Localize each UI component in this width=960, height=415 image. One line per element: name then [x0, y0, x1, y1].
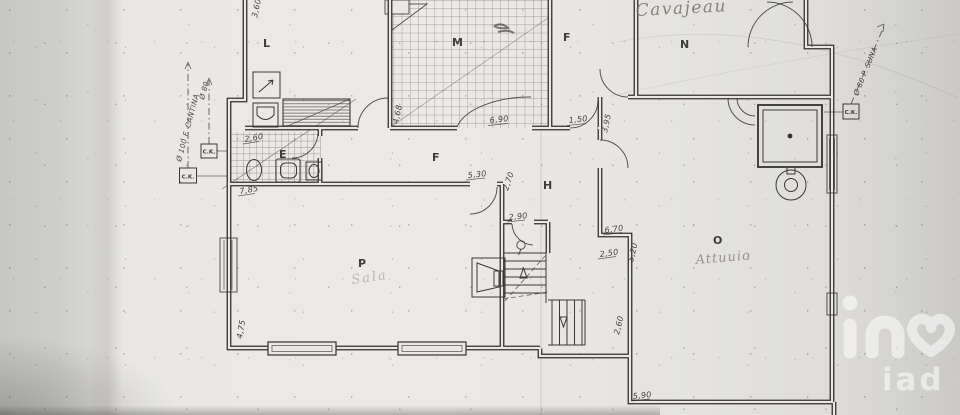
room-label-h: H: [543, 179, 552, 192]
tiled-floor-m: [385, 0, 550, 128]
dim-290: 2,90: [508, 211, 528, 222]
tiled-floor-bathroom: [229, 132, 321, 184]
window-bottom-2: [398, 342, 466, 355]
flue-box-label-2: C.K.: [203, 150, 216, 156]
room-label-f-mid: F: [432, 151, 440, 164]
room-label-e: E: [279, 148, 287, 161]
room-label-l: L: [263, 37, 270, 50]
shaft-and-boiler: [758, 105, 822, 200]
kitchen-fixtures: [253, 72, 280, 127]
dim-360: 3,60: [250, 0, 263, 18]
room-label-f-top: F: [563, 31, 571, 44]
window-bottom-1: [268, 342, 336, 355]
room-label-n: N: [680, 38, 689, 51]
handwritten-room-p-note: Sala: [350, 268, 388, 288]
room-label-m: M: [452, 36, 463, 49]
room-label-p: P: [358, 257, 366, 270]
flue-label-cantina: Ø 100 F. CANTINA: [174, 93, 201, 164]
dim-475: 4,75: [235, 319, 247, 339]
iad-logo-icon: [843, 296, 950, 353]
dim-270: 2,70: [501, 171, 515, 192]
handwritten-room-o-note: Attuuio: [694, 248, 751, 268]
scanned-floor-plan-photo: C.K. C.K. C.K. Ø 100 F. CANTINA Ø 80 Ø 8…: [0, 0, 960, 415]
floor-plan-drawing: C.K. C.K. C.K. Ø 100 F. CANTINA Ø 80 Ø 8…: [0, 0, 960, 415]
dim-260-step: 2,60: [612, 315, 625, 336]
handwritten-top-note: Cavajeau: [635, 0, 727, 21]
door-knob-symbol: [517, 241, 525, 249]
staircase: [503, 253, 585, 345]
flue-box-label-3: C.K.: [845, 110, 858, 116]
flue-label-right: Ø 80 P. SUNA: [851, 45, 879, 97]
room-label-o: O: [713, 234, 722, 247]
iad-watermark-text: iad: [882, 362, 945, 398]
iad-watermark: iad: [843, 296, 950, 399]
flue-box-label-1: C.K.: [182, 175, 195, 181]
